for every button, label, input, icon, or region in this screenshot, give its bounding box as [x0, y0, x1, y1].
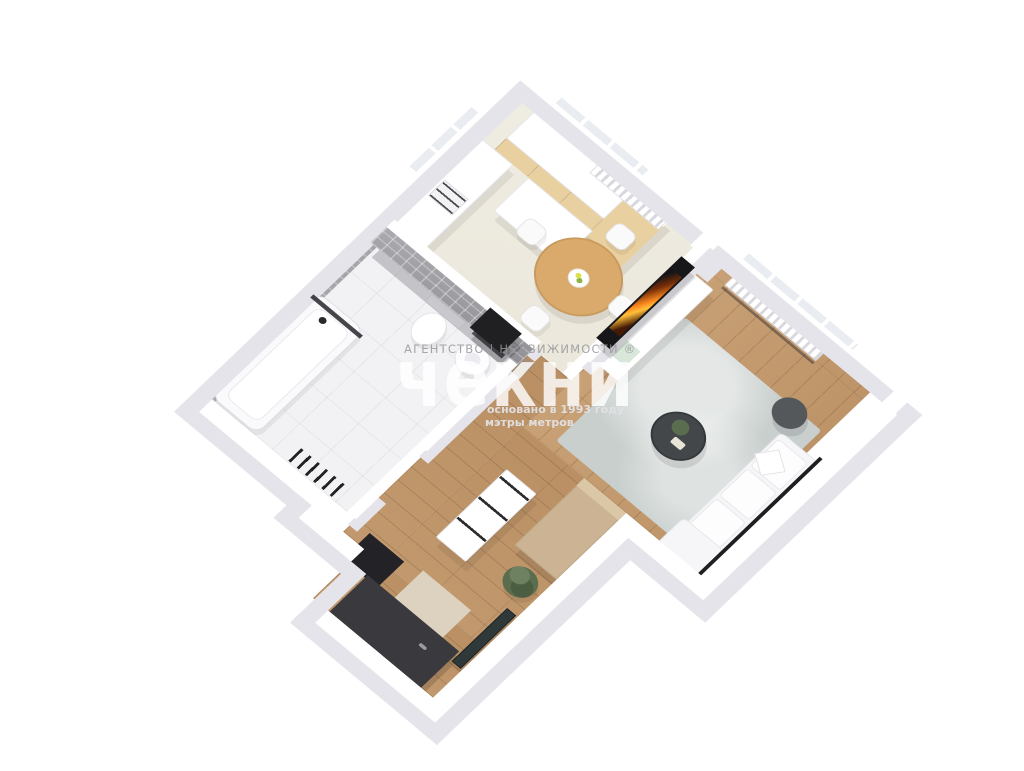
watermark-tagline: мэтры метров: [485, 417, 574, 428]
watermark-founded-line: основано в 1993 году: [487, 404, 624, 415]
floorplan-scene: АГЕНТСТВО | НЕДВИЖИМОСТИ ® чекни основан…: [0, 0, 1024, 771]
